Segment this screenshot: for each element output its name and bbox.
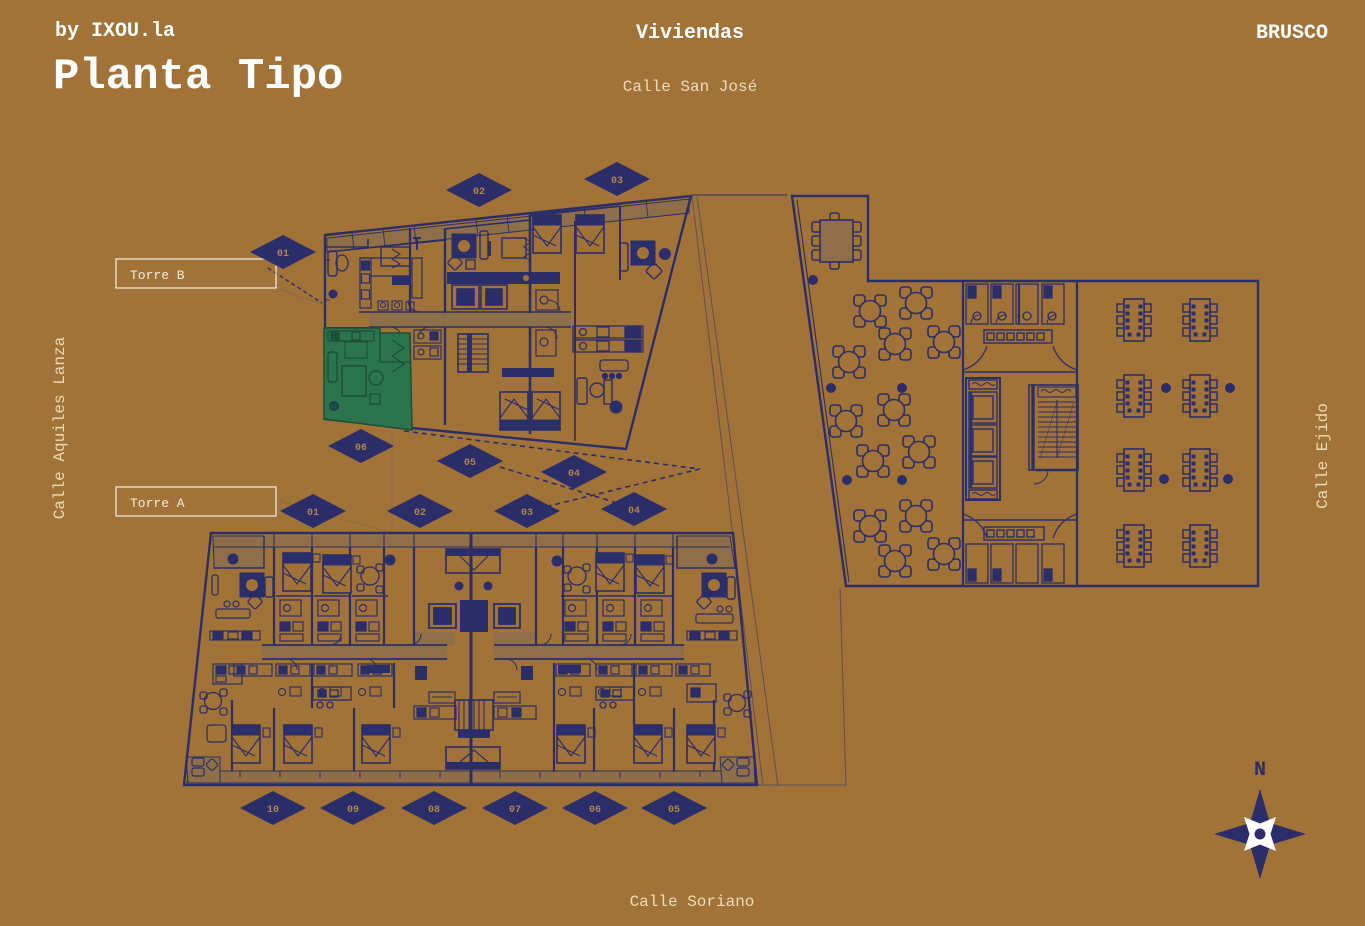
- svg-text:06: 06: [355, 443, 367, 454]
- svg-text:by IXOU.la: by IXOU.la: [55, 20, 175, 43]
- svg-text:Calle San José: Calle San José: [623, 78, 757, 96]
- svg-text:01: 01: [277, 249, 289, 260]
- svg-text:Calle Aquiles Lanza: Calle Aquiles Lanza: [51, 336, 69, 519]
- svg-text:03: 03: [611, 176, 623, 187]
- svg-text:02: 02: [414, 508, 426, 519]
- svg-text:05: 05: [464, 458, 476, 469]
- svg-text:09: 09: [347, 805, 359, 816]
- svg-text:03: 03: [521, 508, 533, 519]
- svg-text:10: 10: [267, 805, 279, 816]
- svg-text:08: 08: [428, 805, 440, 816]
- svg-text:Torre A: Torre A: [130, 496, 185, 511]
- svg-text:04: 04: [628, 506, 640, 517]
- svg-text:07: 07: [509, 805, 521, 816]
- svg-text:02: 02: [473, 187, 485, 198]
- svg-text:BRUSCO: BRUSCO: [1256, 22, 1328, 45]
- svg-text:Calle Soriano: Calle Soriano: [630, 893, 755, 911]
- svg-text:N: N: [1254, 759, 1266, 782]
- svg-text:Viviendas: Viviendas: [636, 22, 744, 45]
- svg-text:Planta Tipo: Planta Tipo: [53, 52, 343, 102]
- svg-text:Torre B: Torre B: [130, 268, 185, 283]
- svg-text:06: 06: [589, 805, 601, 816]
- svg-text:04: 04: [568, 469, 580, 480]
- svg-text:05: 05: [668, 805, 680, 816]
- svg-text:01: 01: [307, 508, 319, 519]
- svg-text:Calle Ejido: Calle Ejido: [1314, 403, 1332, 509]
